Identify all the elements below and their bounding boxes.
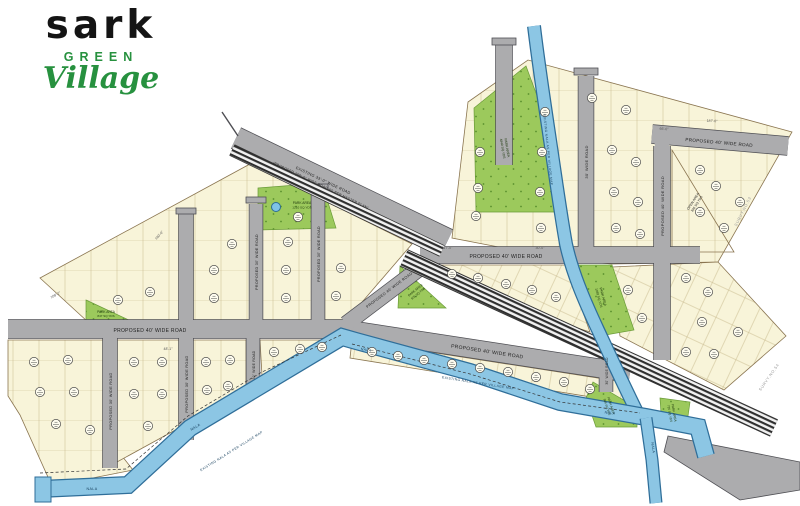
nala-label-5: NALA bbox=[87, 487, 98, 491]
road-label-left-vertical-2: PROPOSED 30' WIDE ROAD bbox=[185, 355, 189, 412]
dimension-label-7: 30'-0" bbox=[536, 246, 546, 250]
canal-branch-south bbox=[646, 418, 656, 503]
dimension-label-1: 187'-0" bbox=[707, 119, 719, 124]
road-label-se-vertical: 30' WIDE ROAD bbox=[605, 357, 609, 385]
road-label-right-vertical: PROPOSED 40' WIDE ROAD bbox=[660, 176, 665, 236]
logo-brand: sark bbox=[22, 6, 180, 47]
logo-village-text: Village bbox=[22, 64, 180, 94]
road-label-topright-vertical: 30' WIDE ROAD bbox=[584, 145, 589, 178]
park-area: 1210 SQ.YDS bbox=[292, 205, 311, 209]
park-area: 847 SQ.YDS bbox=[97, 314, 114, 318]
road-label-mid-vertical-2: PROPOSED 30' WIDE ROAD bbox=[317, 226, 321, 282]
nala-long-label-1: EXISTING NALA AS PER VILLAGE MAP bbox=[199, 430, 263, 472]
road-label-left-vertical-1: PROPOSED 30' WIDE ROAD bbox=[109, 372, 113, 429]
road-label-left-vertical-3: 30' WIDE ROAD bbox=[252, 350, 256, 379]
road-label-mid-vertical-1: PROPOSED 30' WIDE ROAD bbox=[255, 234, 259, 290]
road-tail-line bbox=[222, 112, 238, 136]
logo: sark GREEN Village bbox=[22, 6, 180, 94]
road-label-right-main: PROPOSED 40' WIDE ROAD bbox=[469, 254, 542, 260]
park-label-left-triangle: PARK AREA 847 SQ.YDS bbox=[97, 310, 116, 318]
dimension-label-2: 117'-0" bbox=[442, 246, 453, 250]
well-icon bbox=[272, 203, 281, 212]
dimension-label-8: 66'-0" bbox=[659, 127, 669, 132]
park-label-well: PARK AREA 1210 SQ.YDS bbox=[292, 201, 312, 209]
canal-west-cap bbox=[35, 477, 51, 502]
survey-label-2: SURVY.NO.54 bbox=[757, 362, 780, 392]
road-label-left-main: PROPOSED 40' WIDE ROAD bbox=[113, 328, 186, 334]
road-se-gray-tail bbox=[664, 436, 800, 500]
layout-plan-page: sark GREEN Village bbox=[0, 0, 800, 506]
dimension-label-6: 48'-1" bbox=[164, 347, 174, 351]
